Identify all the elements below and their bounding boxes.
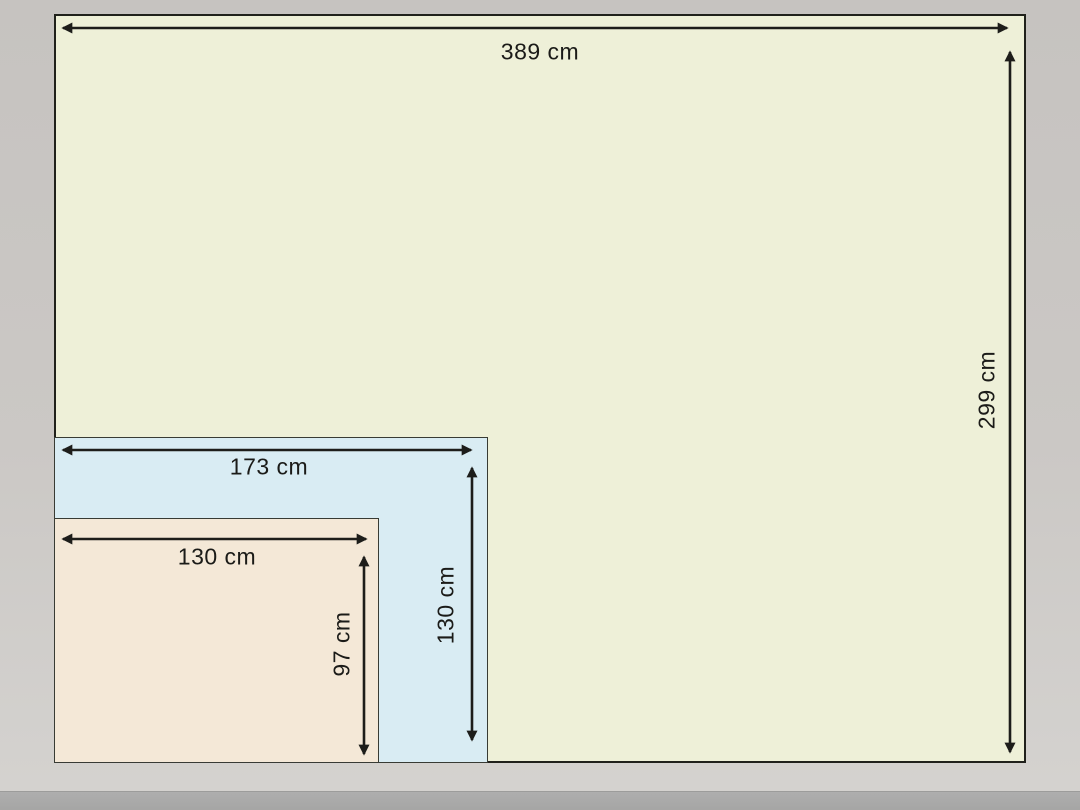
inner-height-label: 97 cm bbox=[329, 611, 356, 676]
outer-width-label: 389 cm bbox=[501, 39, 579, 66]
slide-canvas: 389 cm 299 cm 173 cm 130 cm 130 cm 97 cm bbox=[0, 0, 1080, 810]
outer-height-label: 299 cm bbox=[974, 351, 1001, 429]
bottom-bar bbox=[0, 791, 1080, 810]
middle-height-label: 130 cm bbox=[433, 566, 460, 644]
middle-width-label: 173 cm bbox=[230, 454, 308, 481]
inner-width-label: 130 cm bbox=[178, 544, 256, 571]
